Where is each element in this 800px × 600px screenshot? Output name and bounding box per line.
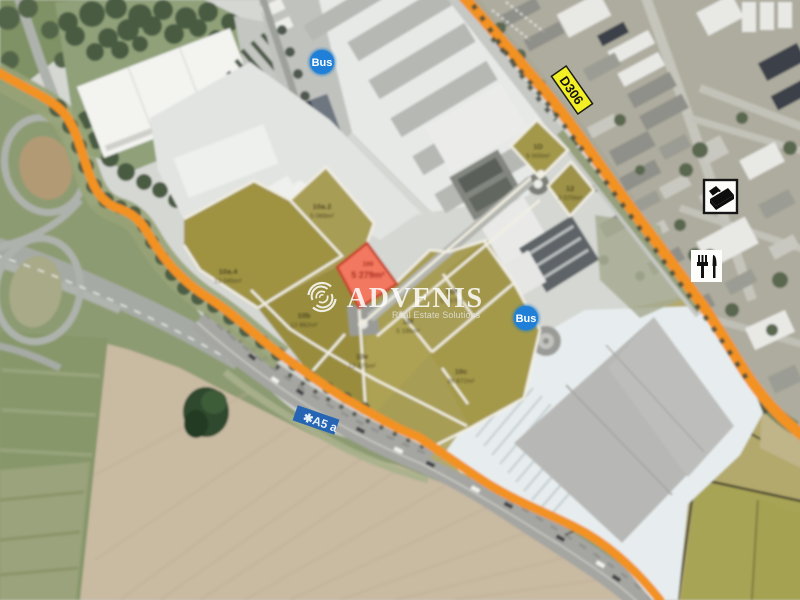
svg-text:Bus: Bus xyxy=(516,313,537,325)
svg-text:1D: 1D xyxy=(533,142,543,151)
svg-text:2 070m²: 2 070m² xyxy=(558,195,583,202)
svg-text:5 199m²: 5 199m² xyxy=(396,328,421,335)
svg-text:10c: 10c xyxy=(455,367,468,376)
svg-text:5 279m²: 5 279m² xyxy=(351,270,385,280)
svg-text:Bus: Bus xyxy=(312,57,333,69)
svg-text:5 069m²: 5 069m² xyxy=(310,213,335,220)
svg-text:Real Estate Solutions: Real Estate Solutions xyxy=(392,310,481,320)
svg-text:100: 100 xyxy=(363,261,374,268)
svg-text:12: 12 xyxy=(566,184,574,193)
svg-text:12 375m²: 12 375m² xyxy=(348,363,376,370)
svg-text:12 662m²: 12 662m² xyxy=(290,322,318,329)
svg-text:26 672m²: 26 672m² xyxy=(447,378,475,385)
svg-text:5 000m²: 5 000m² xyxy=(526,153,551,160)
svg-text:10b: 10b xyxy=(298,311,311,320)
svg-text:10e: 10e xyxy=(356,352,369,361)
svg-text:13 045m²: 13 045m² xyxy=(214,278,242,285)
svg-text:10a.2: 10a.2 xyxy=(313,202,332,211)
svg-text:10a.4: 10a.4 xyxy=(219,267,239,276)
